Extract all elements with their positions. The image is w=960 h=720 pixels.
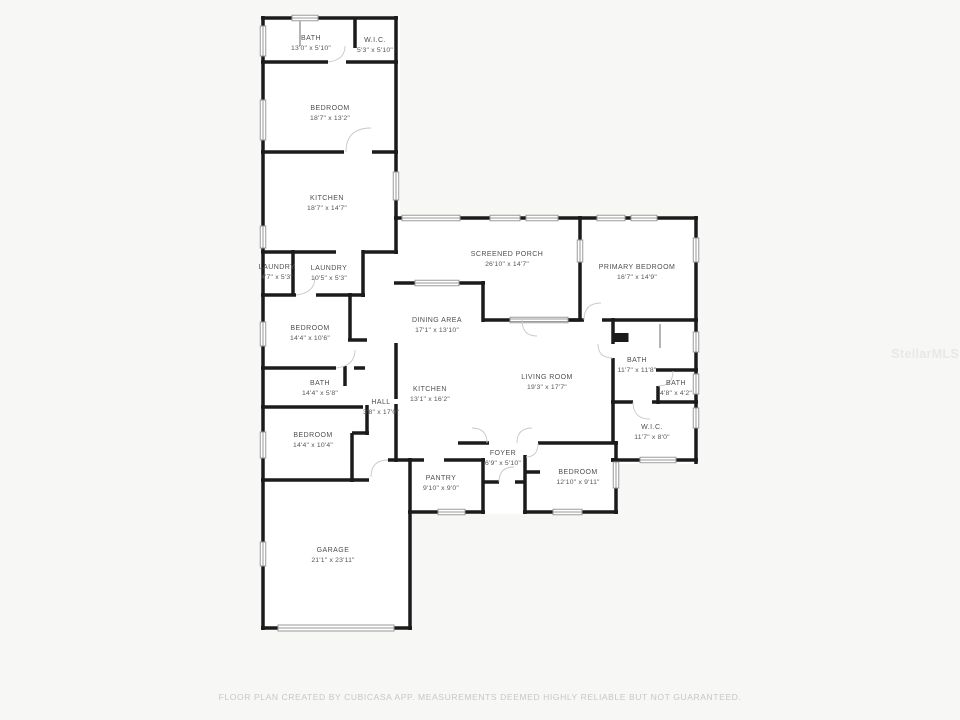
room-label-dining-area: DINING AREA 17'1" x 13'10" — [412, 316, 462, 335]
room-dims: 3'8" x 17'0" — [363, 408, 399, 417]
room-name: BEDROOM — [556, 468, 599, 477]
room-label-hall: HALL 3'8" x 17'0" — [363, 398, 399, 417]
mls-watermark: StellarMLS — [891, 347, 959, 361]
room-name: BEDROOM — [293, 431, 333, 440]
room-dims: 18'7" x 14'7" — [307, 204, 347, 213]
room-dims: 13'0" x 5'10" — [291, 44, 331, 53]
room-label-pantry: PANTRY 9'10" x 9'0" — [423, 474, 459, 493]
room-dims: 19'3" x 17'7" — [521, 383, 573, 392]
room-label-primary-bath: BATH 11'7" x 11'8" — [618, 356, 657, 375]
room-name: BATH — [291, 34, 331, 43]
room-name: KITCHEN — [410, 385, 450, 394]
room-label-foyer: FOYER 6'9" x 5'10" — [485, 449, 521, 468]
room-name: BATH — [660, 379, 692, 388]
room-dims: 14'4" x 5'8" — [302, 389, 338, 398]
room-dims: 6'9" x 5'10" — [485, 459, 521, 468]
room-name: PRIMARY BEDROOM — [599, 263, 676, 272]
room-label-bath-small: BATH 4'8" x 4'2" — [660, 379, 692, 398]
room-name: LAUNDRY — [311, 264, 347, 273]
room-label-wic-primary: W.I.C. 11'7" x 8'0" — [634, 423, 669, 442]
room-label-living-room: LIVING ROOM 19'3" x 17'7" — [521, 373, 573, 392]
room-label-kitchen-wing: KITCHEN 18'7" x 14'7" — [307, 194, 347, 213]
room-label-bedroom-2: BEDROOM 14'4" x 10'6" — [290, 324, 330, 343]
room-label-bath-upper: BATH 13'0" x 5'10" — [291, 34, 331, 53]
room-label-bedroom-1: BEDROOM 18'7" x 13'2" — [310, 104, 350, 123]
floorplan-drawing — [0, 0, 960, 720]
room-label-screened-porch: SCREENED PORCH 26'10" x 14'7" — [471, 250, 543, 269]
room-name: KITCHEN — [307, 194, 347, 203]
room-dims: 5'3" x 5'10" — [357, 46, 393, 55]
room-label-primary-bedroom: PRIMARY BEDROOM 16'7" x 14'9" — [599, 263, 676, 282]
room-label-wic-upper: W.I.C. 5'3" x 5'10" — [357, 36, 393, 55]
room-dims: 18'7" x 13'2" — [310, 114, 350, 123]
room-name: LIVING ROOM — [521, 373, 573, 382]
room-label-laundry: LAUNDRY 10'5" x 5'3" — [311, 264, 347, 283]
room-label-bedroom-3: BEDROOM 14'4" x 10'4" — [293, 431, 333, 450]
floorplan-page: { "watermark": "StellarMLS", "footer": "… — [0, 0, 960, 720]
room-dims: 4'8" x 4'2" — [660, 389, 692, 398]
room-name: LAUNDRY — [259, 263, 295, 272]
room-name: GARAGE — [311, 546, 354, 555]
room-dims: 14'4" x 10'6" — [290, 334, 330, 343]
room-dims: 9'10" x 9'0" — [423, 484, 459, 493]
room-label-garage: GARAGE 21'1" x 23'11" — [311, 546, 354, 565]
room-label-laundry-small: LAUNDRY 4'7" x 5'3" — [259, 263, 295, 282]
room-label-bedroom-4: BEDROOM 12'10" x 9'11" — [556, 468, 599, 487]
room-name: W.I.C. — [634, 423, 669, 432]
room-name: DINING AREA — [412, 316, 462, 325]
room-dims: 26'10" x 14'7" — [471, 260, 543, 269]
room-dims: 17'1" x 13'10" — [412, 326, 462, 335]
room-dims: 10'5" x 5'3" — [311, 274, 347, 283]
room-name: FOYER — [485, 449, 521, 458]
room-label-kitchen-main: KITCHEN 13'1" x 16'2" — [410, 385, 450, 404]
room-label-bath-hall: BATH 14'4" x 5'8" — [302, 379, 338, 398]
room-dims: 14'4" x 10'4" — [293, 441, 333, 450]
room-dims: 13'1" x 16'2" — [410, 395, 450, 404]
room-name: PANTRY — [423, 474, 459, 483]
room-name: BEDROOM — [310, 104, 350, 113]
room-dims: 11'7" x 11'8" — [618, 366, 657, 375]
room-name: BATH — [302, 379, 338, 388]
room-dims: 4'7" x 5'3" — [259, 273, 295, 282]
room-dims: 11'7" x 8'0" — [634, 433, 669, 442]
room-dims: 21'1" x 23'11" — [311, 556, 354, 565]
room-name: HALL — [363, 398, 399, 407]
room-name: SCREENED PORCH — [471, 250, 543, 259]
room-name: W.I.C. — [357, 36, 393, 45]
room-name: BATH — [618, 356, 657, 365]
disclaimer-text: FLOOR PLAN CREATED BY CUBICASA APP. MEAS… — [219, 692, 742, 702]
room-dims: 16'7" x 14'9" — [599, 273, 676, 282]
room-name: BEDROOM — [290, 324, 330, 333]
room-dims: 12'10" x 9'11" — [556, 478, 599, 487]
